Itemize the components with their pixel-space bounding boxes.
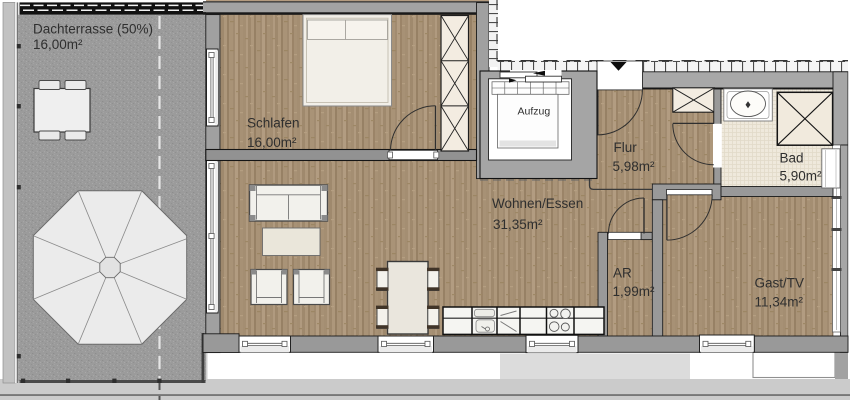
svg-text:31,35m²: 31,35m² (493, 217, 543, 232)
svg-text:1,99m²: 1,99m² (613, 284, 656, 299)
svg-text:Gast/TV: Gast/TV (755, 276, 805, 291)
svg-text:Aufzug: Aufzug (518, 106, 551, 118)
svg-text:Bad: Bad (780, 151, 804, 166)
svg-text:Schlafen: Schlafen (247, 115, 300, 130)
svg-text:Wohnen/Essen: Wohnen/Essen (492, 196, 583, 211)
svg-text:AR: AR (613, 266, 632, 281)
svg-text:Dachterrasse (50%): Dachterrasse (50%) (33, 22, 153, 37)
svg-text:16,00m²: 16,00m² (33, 37, 83, 52)
svg-text:11,34m²: 11,34m² (755, 295, 804, 310)
svg-text:5,90m²: 5,90m² (780, 169, 823, 184)
svg-text:Flur: Flur (614, 140, 638, 155)
svg-text:16,00m²: 16,00m² (247, 135, 297, 150)
svg-text:5,98m²: 5,98m² (613, 159, 656, 174)
